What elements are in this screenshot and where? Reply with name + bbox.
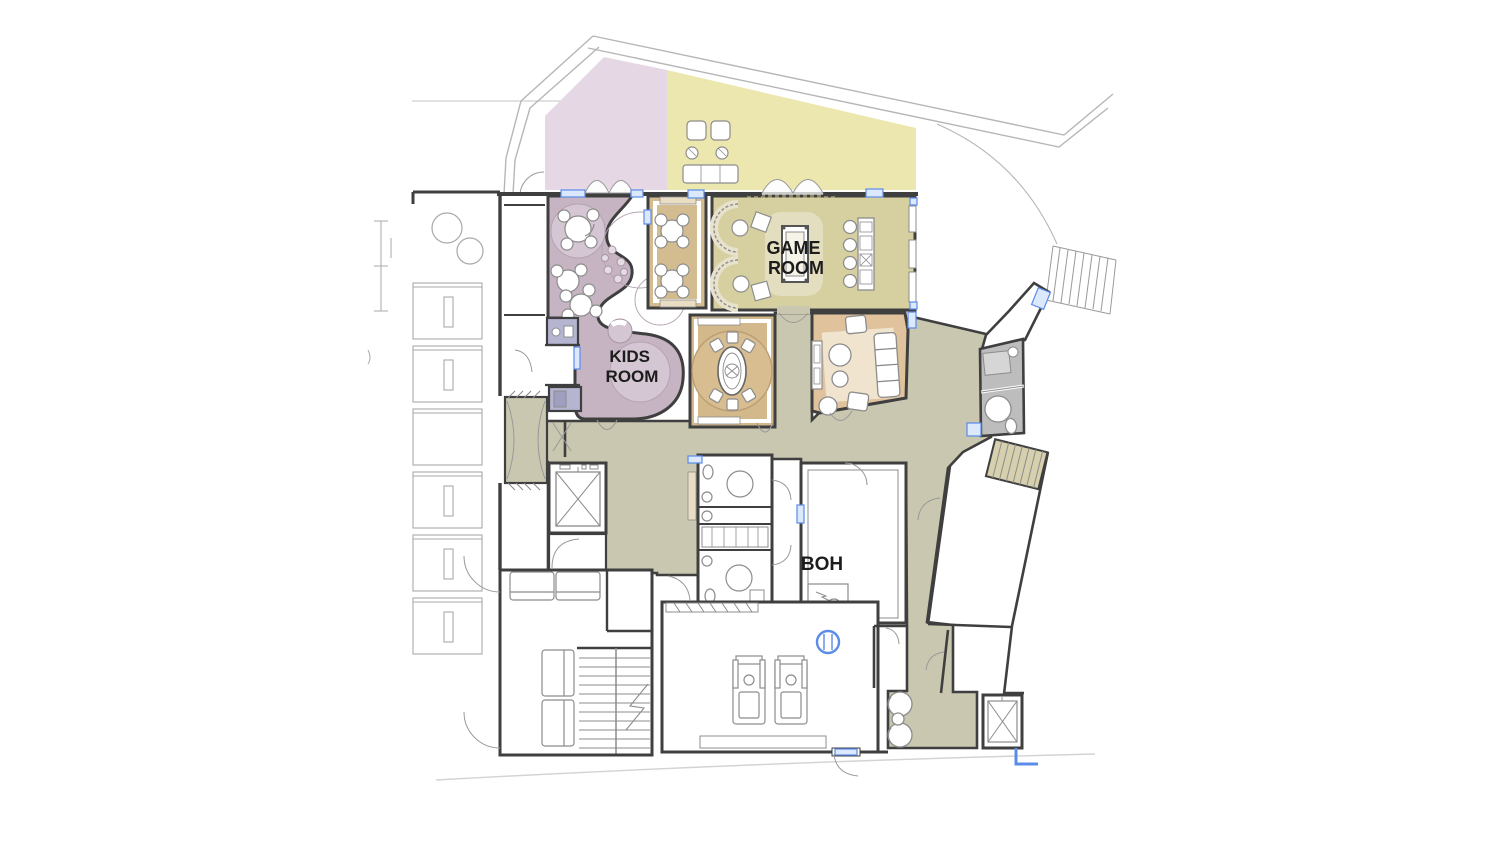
cafe-room xyxy=(648,196,706,308)
left-annotation-marks xyxy=(368,221,391,364)
window-marker xyxy=(866,189,883,197)
activity-table xyxy=(718,347,746,395)
interior-stair xyxy=(986,439,1048,489)
elevator-east xyxy=(983,695,1022,748)
window-marker xyxy=(908,312,916,328)
kids-door-marker xyxy=(574,347,580,369)
service-room xyxy=(662,576,878,776)
lounge-sofa xyxy=(874,332,900,397)
terrace-pink xyxy=(545,57,667,190)
game-window-wall xyxy=(909,206,916,302)
floor-plan-page: GAME ROOM xyxy=(0,0,1500,844)
window-marker xyxy=(688,456,702,463)
exterior-stair-icon xyxy=(1046,246,1116,314)
entry-vestibule xyxy=(505,397,547,483)
boh-label: BOH xyxy=(801,554,843,575)
kids-room-label: KIDS ROOM xyxy=(606,347,659,386)
activity-room xyxy=(690,315,775,427)
service-door-marker xyxy=(835,749,857,755)
stair-room xyxy=(464,556,652,755)
bathroom-door-marker xyxy=(967,423,981,436)
window-marker xyxy=(644,210,651,224)
west-strip xyxy=(500,172,545,570)
game-room-label: GAME ROOM xyxy=(766,238,825,278)
window-marker xyxy=(910,198,917,205)
floor-plan-drawing: GAME ROOM xyxy=(0,0,1500,844)
tv-console xyxy=(812,341,822,389)
terrace-yellow xyxy=(667,70,916,190)
left-wing xyxy=(368,192,500,654)
window-marker xyxy=(561,190,585,197)
elevator-west xyxy=(549,463,606,570)
window-marker xyxy=(797,505,804,523)
restrooms xyxy=(688,455,791,607)
equipment-circle-icon xyxy=(817,631,839,653)
window-marker xyxy=(910,302,917,309)
cafe-bench xyxy=(660,300,696,307)
game-room: GAME ROOM xyxy=(712,196,916,323)
boh-room: BOH xyxy=(801,463,906,623)
restroom-door-panel xyxy=(688,472,696,520)
window-marker xyxy=(631,190,643,197)
equipment-counter xyxy=(666,603,758,612)
left-wing-bays xyxy=(413,283,482,654)
window-marker xyxy=(688,190,704,198)
kids-closets xyxy=(545,318,581,411)
